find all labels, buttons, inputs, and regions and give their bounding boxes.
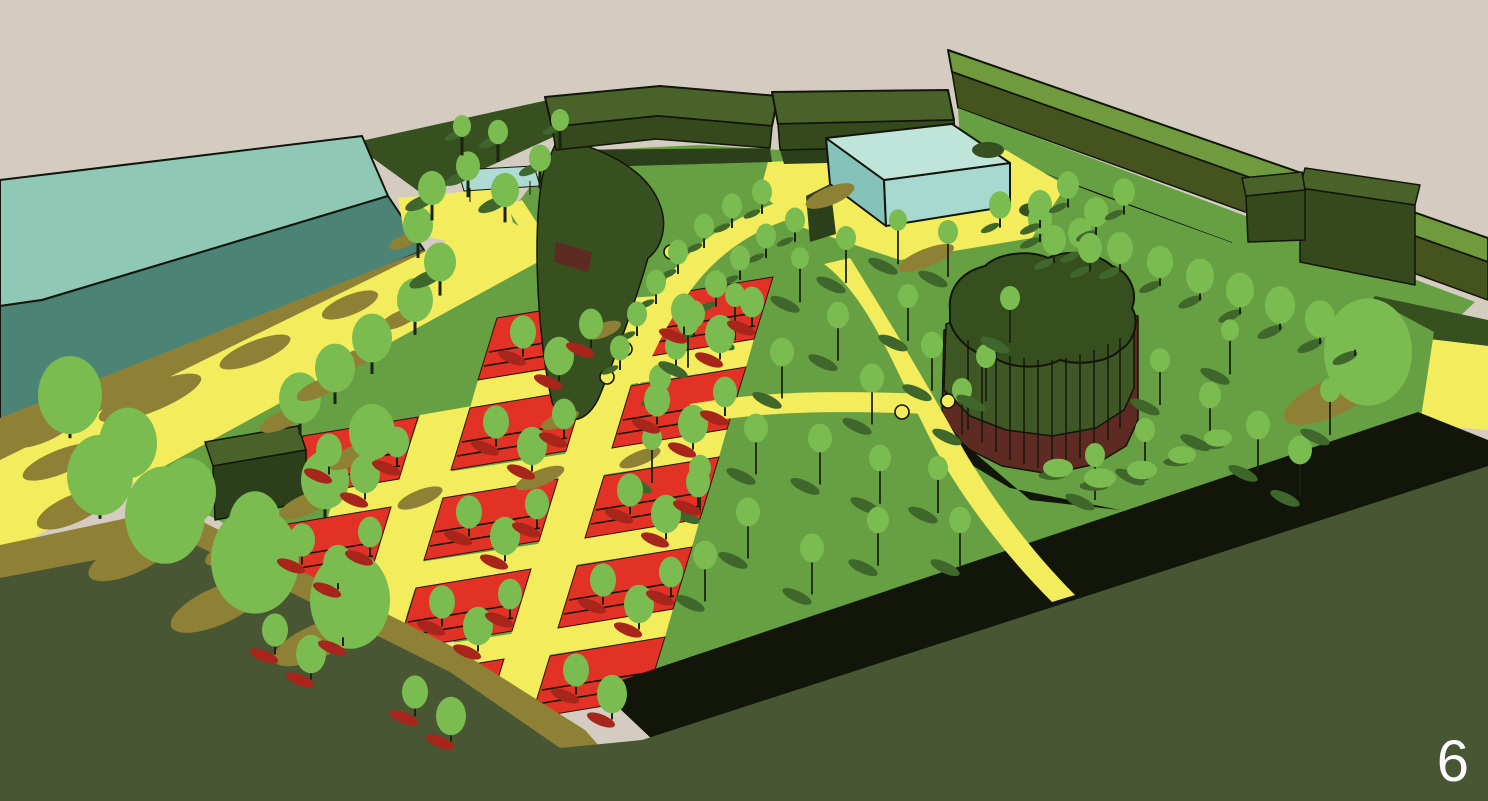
page-number: 6 bbox=[1437, 733, 1470, 791]
east-annex-facade bbox=[1246, 190, 1305, 242]
path-marker-ring bbox=[941, 394, 955, 408]
bush bbox=[972, 142, 1004, 158]
path-marker-ring bbox=[895, 405, 909, 419]
north-center-building-roof bbox=[772, 90, 954, 124]
tree-mound bbox=[942, 253, 1138, 474]
site-plan-3d-view bbox=[0, 0, 1488, 801]
site-plan-render-page: 6 bbox=[0, 0, 1488, 801]
